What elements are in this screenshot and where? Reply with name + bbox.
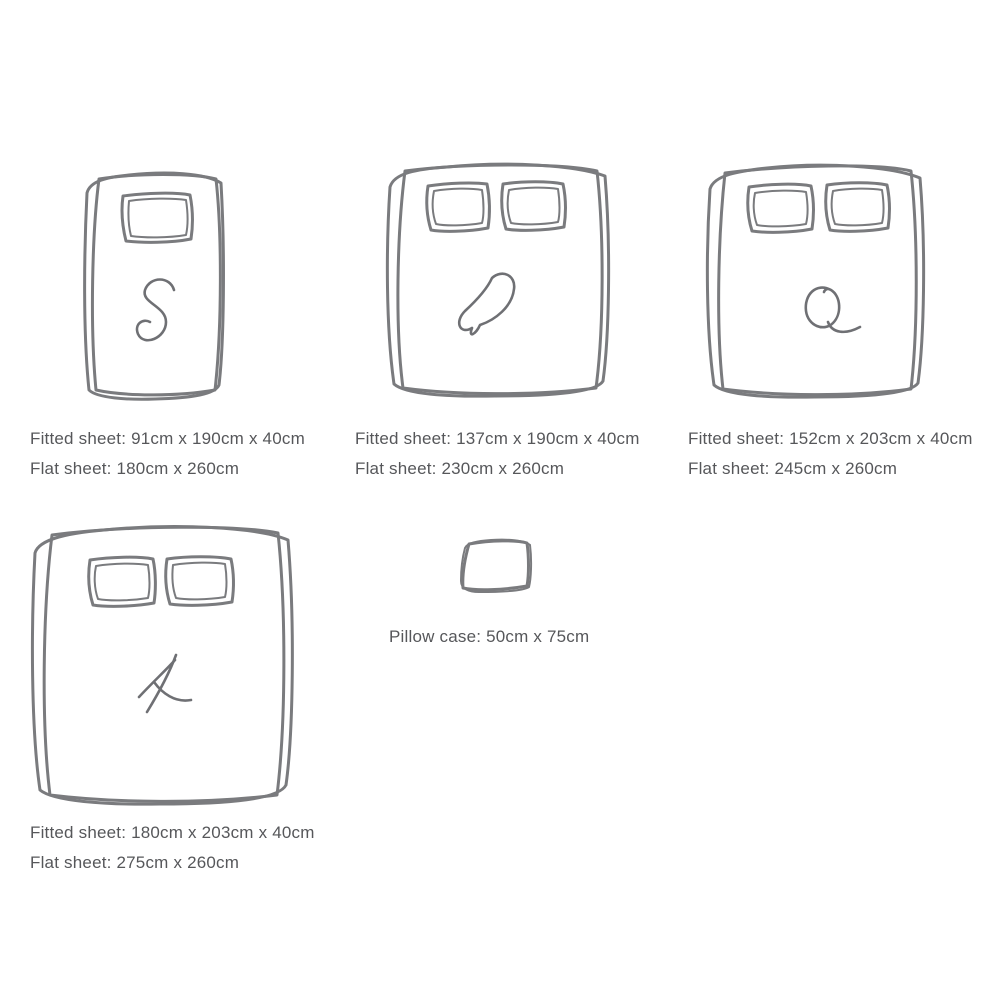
queen-bed-illustration [697,153,935,405]
single-bed-illustration [75,163,235,403]
single-spec-block: Fitted sheet: 91cm x 190cm x 40cm Flat s… [30,424,305,484]
bed-outline [398,165,602,394]
single-bed-figure [75,163,235,403]
pillow-right-sketch [508,188,560,225]
pillow-case-label: Pillow case: 50cm x 75cm [389,622,589,652]
fitted-sheet-spec: Fitted sheet: 91cm x 190cm x 40cm [30,424,305,454]
double-bed-illustration [375,153,620,403]
bed-outline-sketch [707,165,923,397]
bed-outline-sketch [32,527,292,805]
bed-outline [44,527,284,801]
double-spec-block: Fitted sheet: 137cm x 190cm x 40cm Flat … [355,424,640,484]
fitted-sheet-spec: Fitted sheet: 180cm x 203cm x 40cm [30,818,315,848]
pillow-right-sketch [832,189,884,226]
pillow-left-sketch [433,189,484,226]
fitted-sheet-spec: Fitted sheet: 137cm x 190cm x 40cm [355,424,640,454]
double-bed-figure [375,153,620,403]
queen-spec-block: Fitted sheet: 152cm x 203cm x 40cm Flat … [688,424,973,484]
size-letter-k-arm [139,660,175,697]
pillow-case-outline [463,541,529,590]
size-letter-q-glyph [806,288,839,328]
bed-outline-sketch [387,164,608,396]
pillow-shape-sketch [128,199,187,238]
queen-bed-figure [697,153,935,405]
pillow-case-figure [447,531,537,599]
flat-sheet-spec: Flat sheet: 180cm x 260cm [30,454,305,484]
pillow-case-illustration [447,531,537,599]
size-letter-s-glyph [137,280,174,341]
pillow-right-sketch [172,563,226,600]
bed-sheet-size-guide: Fitted sheet: 91cm x 190cm x 40cm Flat s… [0,0,1000,1000]
king-bed-illustration [20,513,305,813]
flat-sheet-spec: Flat sheet: 275cm x 260cm [30,848,315,878]
bed-outline-sketch [85,173,224,399]
pillow-left-sketch [754,191,808,227]
king-bed-figure [20,513,305,813]
bed-outline [92,175,220,395]
king-spec-block: Fitted sheet: 180cm x 203cm x 40cm Flat … [30,818,315,878]
pillow-case-sketch [461,540,531,592]
size-letter-d-glyph [459,274,514,335]
flat-sheet-spec: Flat sheet: 245cm x 260cm [688,454,973,484]
flat-sheet-spec: Flat sheet: 230cm x 260cm [355,454,640,484]
fitted-sheet-spec: Fitted sheet: 152cm x 203cm x 40cm [688,424,973,454]
pillow-left-sketch [95,564,150,601]
